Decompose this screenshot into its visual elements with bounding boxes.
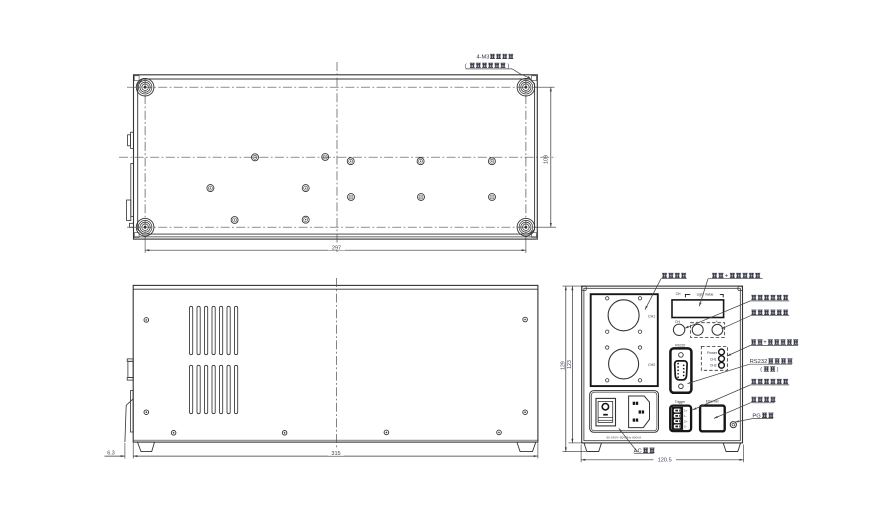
svg-text:6.3: 6.3 bbox=[107, 450, 115, 456]
svg-text:120.5: 120.5 bbox=[658, 457, 672, 463]
svg-text:2+: 2+ bbox=[684, 419, 688, 423]
svg-text:123: 123 bbox=[567, 360, 573, 369]
svg-text:CH1: CH1 bbox=[710, 357, 717, 361]
svg-text:CH2: CH2 bbox=[648, 363, 655, 367]
svg-text:Power: Power bbox=[707, 351, 718, 355]
svg-text:CH: CH bbox=[675, 320, 680, 324]
svg-text:RS232: RS232 bbox=[675, 343, 685, 347]
svg-text:CH2: CH2 bbox=[710, 364, 717, 368]
svg-text:): ) bbox=[777, 367, 779, 373]
svg-text:Trigger: Trigger bbox=[675, 400, 686, 404]
svg-text:315: 315 bbox=[331, 451, 340, 457]
svg-text:4-M3: 4-M3 bbox=[477, 54, 490, 60]
svg-text:(: ( bbox=[760, 367, 762, 373]
svg-text:(: ( bbox=[465, 63, 467, 69]
svg-text:Light Value: Light Value bbox=[697, 293, 714, 297]
svg-text:1-: 1- bbox=[684, 414, 687, 418]
svg-text:2-: 2- bbox=[684, 425, 687, 429]
svg-text:109: 109 bbox=[544, 155, 550, 164]
svg-text:129: 129 bbox=[560, 361, 566, 370]
svg-text:297: 297 bbox=[332, 245, 341, 251]
svg-text:90-240V~50/60Hz 800VA: 90-240V~50/60Hz 800VA bbox=[606, 436, 642, 440]
svg-text:CH1: CH1 bbox=[648, 314, 655, 318]
svg-text:1+: 1+ bbox=[684, 409, 688, 413]
svg-text:): ) bbox=[508, 63, 510, 69]
svg-text:CH: CH bbox=[676, 292, 681, 296]
